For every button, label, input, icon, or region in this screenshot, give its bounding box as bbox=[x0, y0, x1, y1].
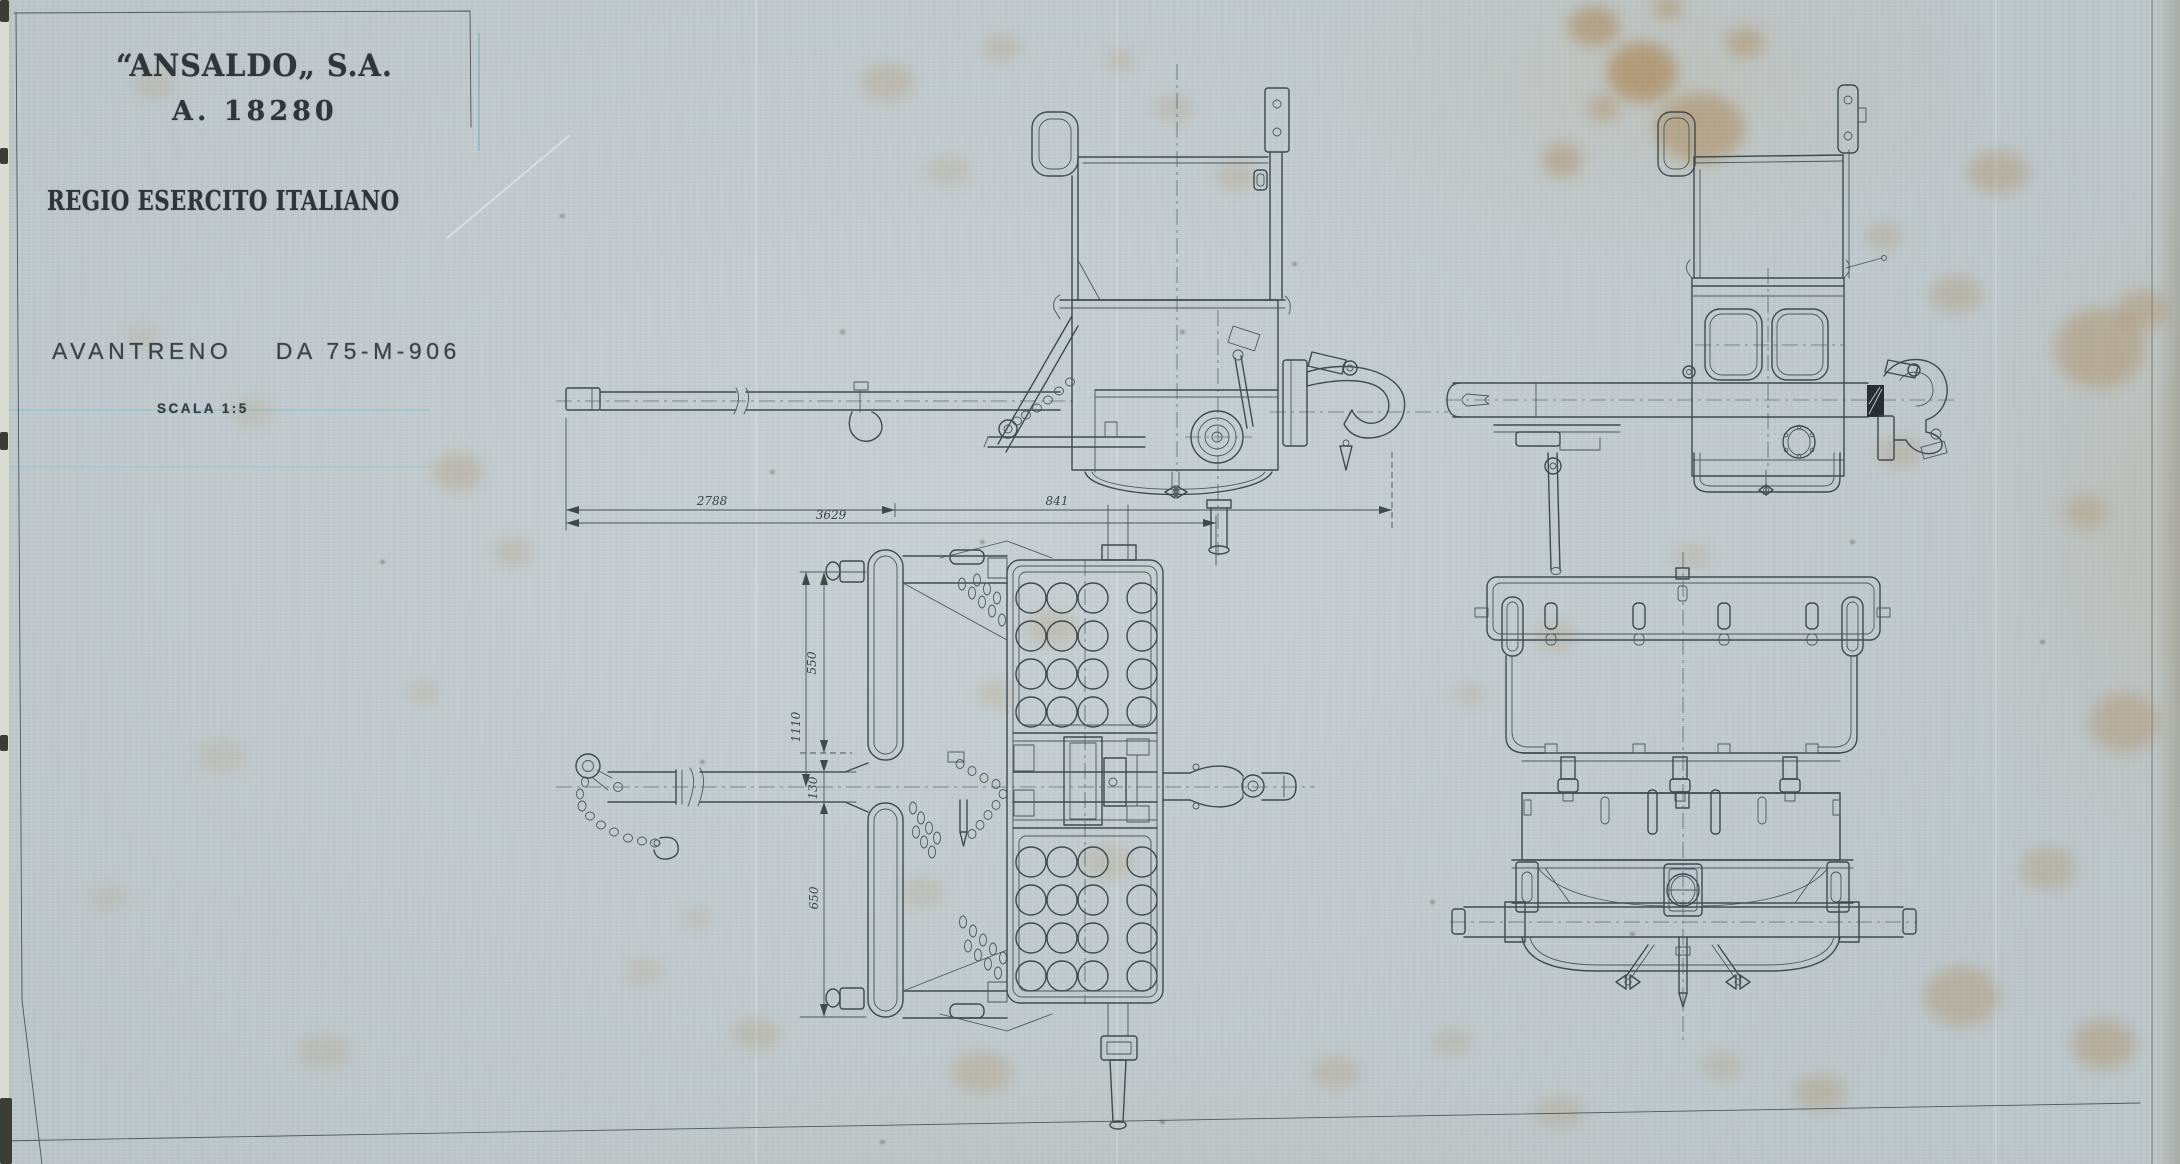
handle-hoop bbox=[1032, 112, 1078, 176]
pole-chain bbox=[577, 777, 679, 859]
vertical-dimensions: 550 1110 130 650 bbox=[789, 572, 866, 1017]
dim-2788: 2788 bbox=[696, 494, 728, 508]
scale-label: SCALA 1:5 bbox=[157, 401, 249, 416]
edge-mark bbox=[0, 1098, 12, 1164]
limber-body bbox=[1683, 256, 1887, 477]
draw-pole-plan bbox=[576, 752, 964, 812]
edge-mark bbox=[0, 148, 8, 164]
horizontal-dimensions: 2788 841 3629 bbox=[566, 418, 1392, 565]
towing-hook bbox=[1878, 360, 1947, 461]
towing-hook bbox=[1283, 352, 1405, 470]
rear-elevation-view bbox=[1445, 85, 1958, 575]
edge-mark bbox=[0, 0, 9, 22]
right-paper-edge bbox=[2156, 0, 2180, 1164]
left-paper-edge bbox=[0, 0, 9, 1164]
chest-front bbox=[1522, 744, 1840, 860]
axle-and-leg-plan bbox=[1101, 505, 1137, 1129]
edge-mark bbox=[0, 735, 8, 751]
shell-tubes-bottom bbox=[1016, 847, 1157, 991]
blueprint-sheet: 2788 841 3629 bbox=[0, 0, 2180, 1164]
brace-and-chain bbox=[998, 316, 1078, 452]
frame-chain bbox=[956, 760, 1007, 847]
open-lid bbox=[1694, 85, 1866, 278]
open-lid bbox=[1072, 88, 1289, 300]
drawing-subject: AVANTRENO DA 75-M-906 bbox=[52, 338, 461, 365]
prop-leg bbox=[1207, 500, 1231, 554]
frame-rails bbox=[826, 541, 1052, 1031]
open-lid-front bbox=[1475, 568, 1890, 656]
lid-clasps bbox=[1558, 757, 1800, 801]
dim-841: 841 bbox=[1046, 494, 1069, 508]
shell-tubes-top bbox=[1016, 583, 1157, 727]
side-hoop-frame bbox=[1506, 656, 1857, 753]
drawing-number: A. 18280 bbox=[172, 96, 338, 127]
company-name: “ANSALDO„ S.A. bbox=[116, 48, 393, 84]
edge-mark bbox=[0, 432, 8, 450]
dim-550: 550 bbox=[805, 651, 819, 674]
pivot-mechanism bbox=[1013, 737, 1157, 825]
handle-hoop bbox=[1658, 112, 1695, 176]
plan-view bbox=[556, 505, 1315, 1129]
belly-tray-front bbox=[1522, 937, 1840, 1007]
dim-130: 130 bbox=[806, 776, 820, 799]
dim-3629: 3629 bbox=[816, 508, 847, 522]
dim-1110: 1110 bbox=[789, 711, 803, 742]
dim-650: 650 bbox=[807, 886, 821, 909]
drawing-canvas: 2788 841 3629 bbox=[0, 0, 2180, 1164]
towing-hook-plan bbox=[1163, 764, 1296, 809]
under-bar-fittings bbox=[1494, 425, 1620, 575]
draw-pole bbox=[566, 382, 1060, 441]
lightening-holes bbox=[910, 574, 1007, 979]
front-elevation-view bbox=[1450, 552, 1917, 1042]
side-elevation-view bbox=[556, 64, 1448, 556]
limber-body bbox=[984, 295, 1290, 498]
client-name: REGIO ESERCITO ITALIANO bbox=[47, 186, 400, 217]
